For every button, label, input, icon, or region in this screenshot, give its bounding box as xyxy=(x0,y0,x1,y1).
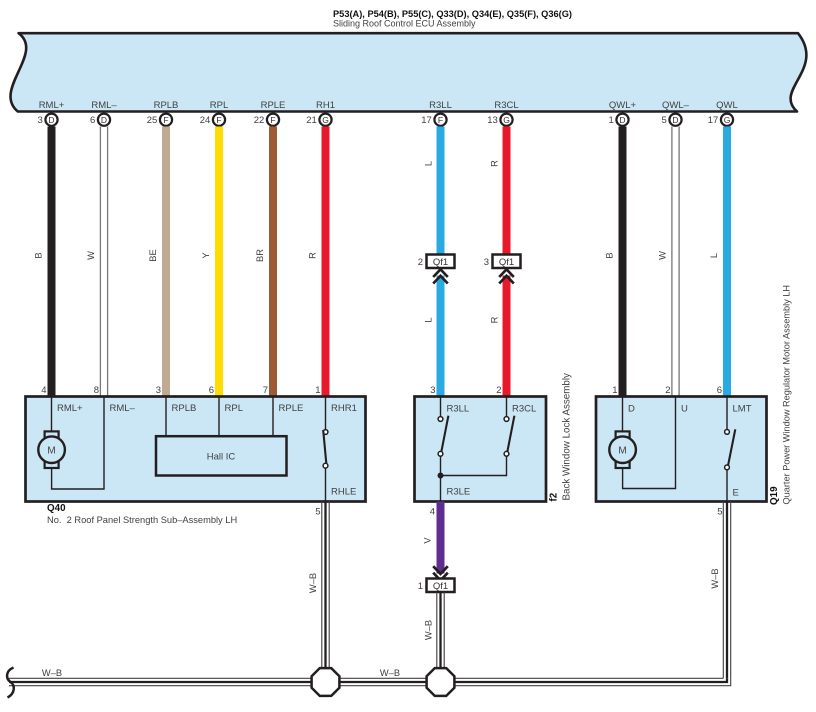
svg-text:21: 21 xyxy=(306,115,317,126)
svg-text:4: 4 xyxy=(41,385,46,396)
svg-text:W–B: W–B xyxy=(710,568,720,588)
svg-text:M: M xyxy=(47,446,55,457)
svg-text:3: 3 xyxy=(38,115,43,126)
svg-text:6: 6 xyxy=(717,385,722,396)
svg-text:RHR1: RHR1 xyxy=(331,403,357,414)
svg-text:RHLE: RHLE xyxy=(331,487,356,498)
svg-text:RML+: RML+ xyxy=(39,100,65,111)
svg-text:L: L xyxy=(709,253,719,258)
svg-text:LMT: LMT xyxy=(733,404,752,415)
svg-text:No. 2 Roof Panel Strength Sub: No. 2 Roof Panel Strength Sub–Assembly L… xyxy=(47,515,237,525)
svg-text:6: 6 xyxy=(209,385,214,396)
svg-text:QWL: QWL xyxy=(716,100,738,111)
svg-text:U: U xyxy=(681,404,688,415)
svg-text:1: 1 xyxy=(609,115,614,126)
svg-text:L: L xyxy=(424,161,434,166)
svg-text:B: B xyxy=(34,252,44,258)
svg-text:RPLE: RPLE xyxy=(279,403,304,414)
svg-text:D: D xyxy=(672,115,678,125)
svg-text:f2: f2 xyxy=(549,492,560,501)
svg-text:F: F xyxy=(438,115,443,125)
svg-text:M: M xyxy=(618,446,626,457)
svg-text:W: W xyxy=(86,251,96,260)
svg-text:R3LL: R3LL xyxy=(429,100,452,111)
svg-text:1: 1 xyxy=(418,581,423,592)
svg-text:22: 22 xyxy=(254,115,265,126)
svg-text:Sliding Roof Control ECU Assem: Sliding Roof Control ECU Assembly xyxy=(333,19,476,29)
svg-text:W–B: W–B xyxy=(424,620,434,640)
svg-text:G: G xyxy=(322,115,329,125)
svg-text:17: 17 xyxy=(421,115,432,126)
svg-text:R3LL: R3LL xyxy=(447,404,470,415)
svg-text:R: R xyxy=(308,252,318,259)
svg-text:Y: Y xyxy=(201,252,211,258)
svg-text:E: E xyxy=(733,488,739,499)
svg-text:R: R xyxy=(490,160,500,167)
svg-text:W: W xyxy=(658,251,668,260)
svg-text:3: 3 xyxy=(484,257,489,268)
svg-text:P53(A), P54(B), P55(C), Q33(D): P53(A), P54(B), P55(C), Q33(D), Q34(E), … xyxy=(333,9,572,19)
svg-text:Qf1: Qf1 xyxy=(433,581,448,592)
svg-text:RML+: RML+ xyxy=(57,403,83,414)
svg-text:5: 5 xyxy=(662,115,667,126)
svg-text:3: 3 xyxy=(156,385,161,396)
svg-text:RPL: RPL xyxy=(225,403,243,414)
svg-text:RML–: RML– xyxy=(110,403,136,414)
svg-text:QWL–: QWL– xyxy=(662,100,690,111)
svg-text:25: 25 xyxy=(147,115,158,126)
svg-text:Q40: Q40 xyxy=(47,503,66,514)
svg-text:R: R xyxy=(490,316,500,323)
svg-text:BE: BE xyxy=(148,249,158,261)
svg-text:F: F xyxy=(216,115,221,125)
svg-text:W–B: W–B xyxy=(380,668,400,678)
svg-text:RML–: RML– xyxy=(91,100,117,111)
svg-text:5: 5 xyxy=(717,507,722,518)
svg-text:1: 1 xyxy=(612,385,617,396)
svg-text:4: 4 xyxy=(430,507,435,518)
svg-text:24: 24 xyxy=(200,115,211,126)
svg-text:W–B: W–B xyxy=(308,573,318,593)
svg-text:2: 2 xyxy=(665,385,670,396)
svg-text:Back Window Lock Assembly: Back Window Lock Assembly xyxy=(562,373,573,501)
svg-text:W–B: W–B xyxy=(42,668,62,678)
svg-text:QWL+: QWL+ xyxy=(609,100,637,111)
svg-text:R3LE: R3LE xyxy=(447,487,471,498)
svg-text:RPL: RPL xyxy=(210,100,228,111)
svg-text:Hall IC: Hall IC xyxy=(207,451,236,462)
svg-text:BR: BR xyxy=(255,249,265,262)
svg-text:3: 3 xyxy=(430,385,435,396)
svg-text:V: V xyxy=(423,537,433,544)
svg-text:5: 5 xyxy=(315,507,320,518)
svg-text:2: 2 xyxy=(496,385,501,396)
svg-text:8: 8 xyxy=(94,385,99,396)
svg-text:F: F xyxy=(270,115,275,125)
svg-text:G: G xyxy=(724,115,731,125)
svg-text:Qf1: Qf1 xyxy=(433,257,448,268)
svg-text:D: D xyxy=(619,115,625,125)
svg-text:D: D xyxy=(101,115,107,125)
svg-text:RPLB: RPLB xyxy=(172,403,197,414)
svg-text:2: 2 xyxy=(418,257,423,268)
svg-text:R3CL: R3CL xyxy=(512,404,536,415)
svg-text:13: 13 xyxy=(487,115,498,126)
svg-text:Quarter Power Window Regulator: Quarter Power Window Regulator Motor Ass… xyxy=(782,285,792,505)
svg-text:D: D xyxy=(48,115,54,125)
svg-text:17: 17 xyxy=(708,115,719,126)
svg-text:D: D xyxy=(628,404,635,415)
svg-text:R3CL: R3CL xyxy=(494,100,518,111)
svg-text:G: G xyxy=(503,115,510,125)
svg-text:F: F xyxy=(163,115,168,125)
svg-text:6: 6 xyxy=(90,115,95,126)
svg-text:7: 7 xyxy=(263,385,268,396)
svg-text:L: L xyxy=(424,317,434,322)
svg-text:RH1: RH1 xyxy=(316,100,335,111)
svg-text:Qf1: Qf1 xyxy=(499,257,514,268)
svg-text:B: B xyxy=(605,252,615,258)
svg-text:1: 1 xyxy=(315,385,320,396)
svg-text:RPLB: RPLB xyxy=(154,100,179,111)
svg-text:RPLE: RPLE xyxy=(261,100,286,111)
svg-text:Q19: Q19 xyxy=(769,486,780,505)
